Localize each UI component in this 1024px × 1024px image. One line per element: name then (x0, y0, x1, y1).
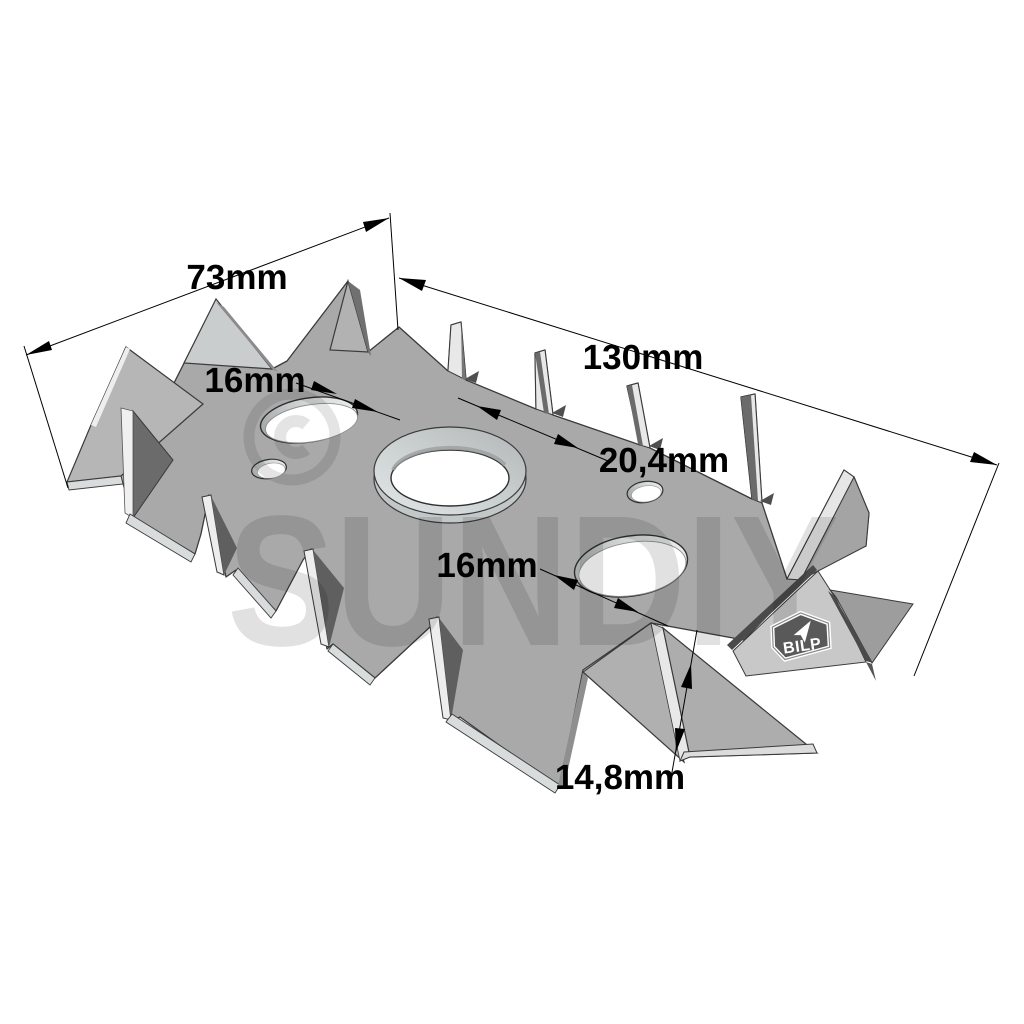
svg-text:16mm: 16mm (436, 546, 537, 585)
svg-text:16mm: 16mm (204, 361, 305, 400)
svg-text:73mm: 73mm (186, 258, 287, 297)
svg-text:20,4mm: 20,4mm (599, 441, 729, 480)
svg-text:130mm: 130mm (583, 338, 704, 377)
svg-text:14,8mm: 14,8mm (555, 758, 685, 797)
